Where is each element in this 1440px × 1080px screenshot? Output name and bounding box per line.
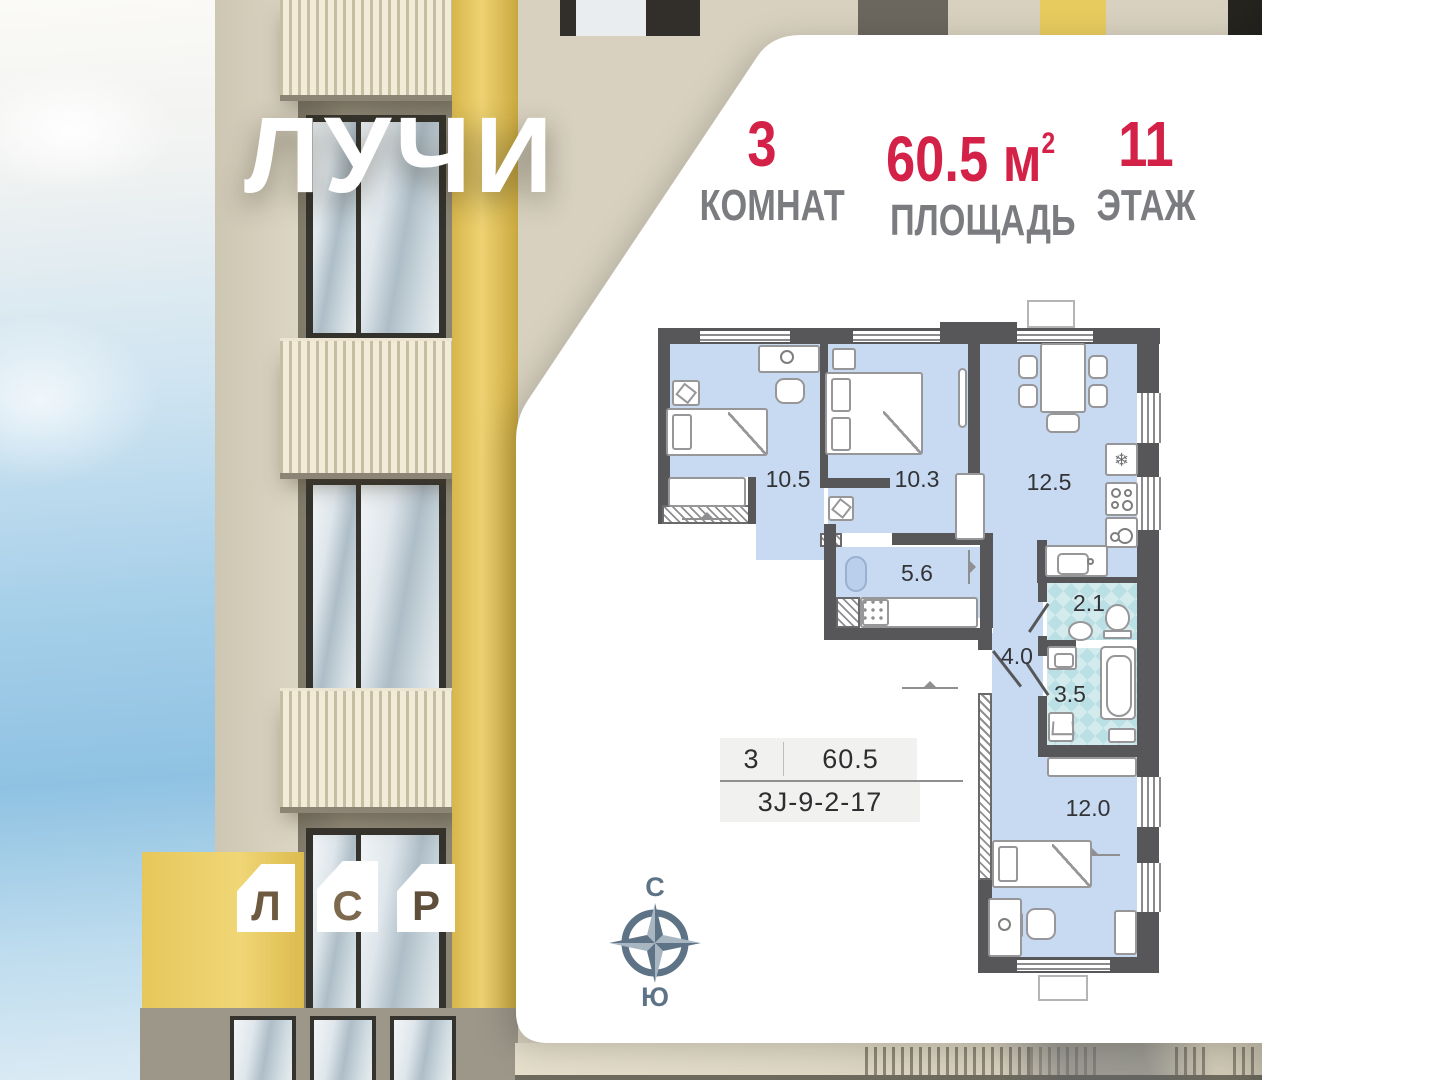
compass-north-label: С [585, 872, 725, 903]
hanger-icon [902, 681, 958, 693]
room-label-corridor: 4.0 [982, 644, 1052, 668]
blanket-fold [1052, 844, 1090, 886]
stat-rooms: 3 КОМНАТ [682, 112, 842, 226]
apartment-info-row: 3 60.5 [720, 738, 917, 780]
chair [1018, 355, 1038, 379]
double-bed [825, 372, 923, 455]
window [1017, 331, 1093, 342]
wc-sink [1068, 621, 1093, 641]
wall-hall-left [824, 524, 836, 630]
window [1137, 777, 1165, 827]
toilet-tank [1103, 630, 1132, 639]
bath-shelf [1108, 728, 1136, 743]
counter-sink [1057, 553, 1089, 575]
faucet [1087, 558, 1094, 565]
single-bed [666, 408, 768, 456]
kitchen-counter [1045, 545, 1108, 577]
shaft-hatch [836, 597, 860, 628]
apartment-code-row: 3J-9-2-17 [720, 782, 920, 822]
room-label-bedroom2: 10.3 [882, 467, 952, 491]
room-label-bathroom: 3.5 [1035, 682, 1105, 706]
stove [1105, 482, 1138, 516]
pillow [831, 417, 851, 451]
window [853, 331, 940, 342]
apartment-card: ЛУЧИ 3 КОМНАТ 60.5 м2 ПЛОЩАДЬ 11 ЭТАЖ [0, 0, 1440, 1080]
wall-top-thick [940, 322, 1017, 332]
desk-lamp [998, 918, 1011, 931]
wall-wc-left [1038, 583, 1047, 602]
stat-area-value: 60.5 м2 [886, 112, 1050, 191]
balcony-outline [1027, 300, 1075, 328]
balcony-outline [1038, 975, 1088, 1001]
burner [1111, 488, 1121, 498]
washing-machine [862, 599, 889, 626]
fridge-icon: ❄ [1105, 443, 1138, 476]
apartment-code: 3J-9-2-17 [758, 787, 883, 818]
cabinet [1114, 910, 1137, 955]
mirror [958, 368, 967, 428]
room-label-bedroom3: 12.0 [1053, 796, 1123, 820]
laundry-basket [1048, 712, 1074, 742]
apartment-area: 60.5 [784, 744, 917, 775]
chair [1088, 355, 1108, 379]
window [700, 331, 790, 342]
chair [1046, 413, 1080, 433]
window [1137, 477, 1165, 530]
room-label-kitchen: 12.5 [1014, 470, 1084, 494]
cabinet [832, 348, 856, 370]
hanger-icon [964, 550, 976, 584]
chair [1088, 384, 1108, 408]
dining-table [1040, 343, 1086, 413]
developer-letter: С [332, 880, 362, 932]
burner [1124, 489, 1132, 497]
wall-bath-bottom [1038, 745, 1137, 757]
compass-rose-icon [585, 903, 725, 983]
blanket-fold [883, 411, 921, 453]
pillow [998, 846, 1018, 882]
desk-lamp [780, 350, 794, 364]
stat-rooms-value: 3 [696, 112, 827, 176]
shaft-hatch [978, 693, 992, 880]
window [1137, 863, 1165, 912]
entry-wardrobe [1047, 757, 1137, 777]
stat-area-label: ПЛОЩАДЬ [890, 201, 1046, 241]
bathtub-basin [1106, 655, 1132, 717]
window [1017, 960, 1110, 971]
floor-plan: ❄ [650, 290, 1180, 1020]
burner [1122, 500, 1133, 511]
developer-letter: Л [251, 880, 280, 932]
stat-floor: 11 ЭТАЖ [1066, 112, 1226, 226]
chair [1018, 384, 1038, 408]
stat-area: 60.5 м2 ПЛОЩАДЬ [868, 112, 1068, 241]
stat-floor-label: ЭТАЖ [1084, 186, 1209, 226]
room-label-bedroom1: 10.5 [753, 467, 823, 491]
compass-south-label: Ю [585, 982, 725, 1013]
wall-stub [820, 478, 890, 488]
nightstand [672, 380, 700, 406]
apartment-rooms: 3 [720, 744, 783, 775]
bathtub [1100, 646, 1136, 720]
nightstand [828, 496, 854, 521]
wardrobe [668, 477, 746, 507]
wall-hall-bottom [824, 628, 992, 640]
room-label-hall: 5.6 [882, 561, 952, 585]
burner [1111, 501, 1119, 509]
developer-letter: Р [412, 880, 440, 932]
kitchen-sink-cabinet [1105, 517, 1138, 548]
chair [1026, 908, 1056, 940]
hall-wardrobe-column [955, 473, 985, 540]
room-label-wc: 2.1 [1054, 591, 1124, 615]
wall-wc-top [1043, 577, 1137, 583]
plate [1110, 532, 1120, 542]
pouf [845, 556, 867, 592]
wall-hall-corridor [980, 545, 993, 628]
blanket-fold [728, 412, 766, 454]
window [1137, 393, 1165, 443]
stat-floor-value: 11 [1080, 112, 1211, 176]
wall-partition-kitchen [968, 344, 980, 473]
project-logo: ЛУЧИ [244, 100, 556, 210]
pillow [672, 414, 692, 450]
stat-rooms-label: КОМНАТ [700, 186, 825, 226]
hanger-icon [682, 512, 732, 524]
pillow [831, 378, 851, 412]
single-bed [992, 840, 1092, 888]
chair [775, 378, 805, 404]
basket-lines [1051, 721, 1074, 735]
sink-basin [1054, 653, 1074, 668]
